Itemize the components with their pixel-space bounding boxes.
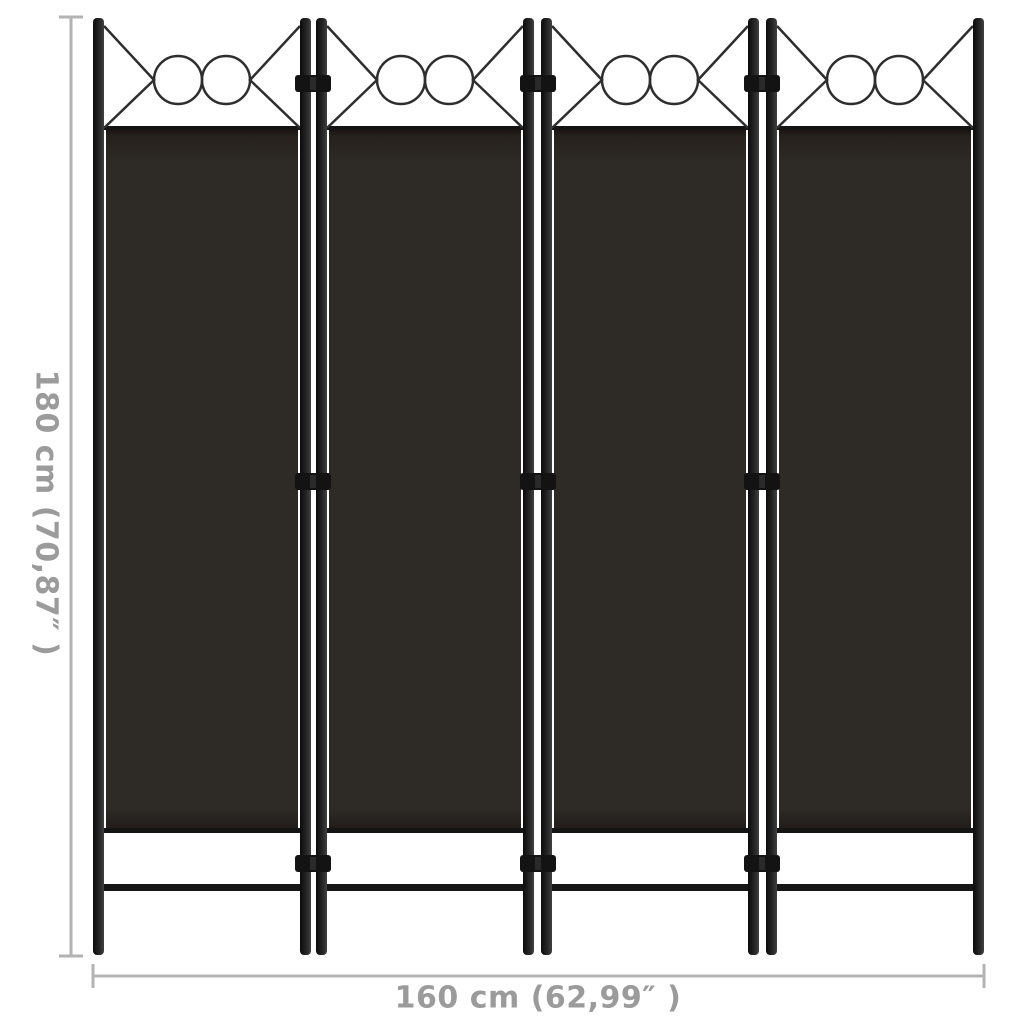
divider-panel-3 <box>541 18 759 955</box>
room-divider-illustration <box>0 0 1024 1024</box>
divider-panel-1 <box>93 18 311 955</box>
height-dimension-label: 180 cm (70,87″ ) <box>29 370 64 657</box>
divider-panel-4 <box>766 18 984 955</box>
divider-panel-2 <box>316 18 534 955</box>
width-dimension-label: 160 cm (62,99″ ) <box>395 981 682 1016</box>
product-dimension-diagram: 180 cm (70,87″ ) 160 cm (62,99″ ) <box>0 0 1024 1024</box>
